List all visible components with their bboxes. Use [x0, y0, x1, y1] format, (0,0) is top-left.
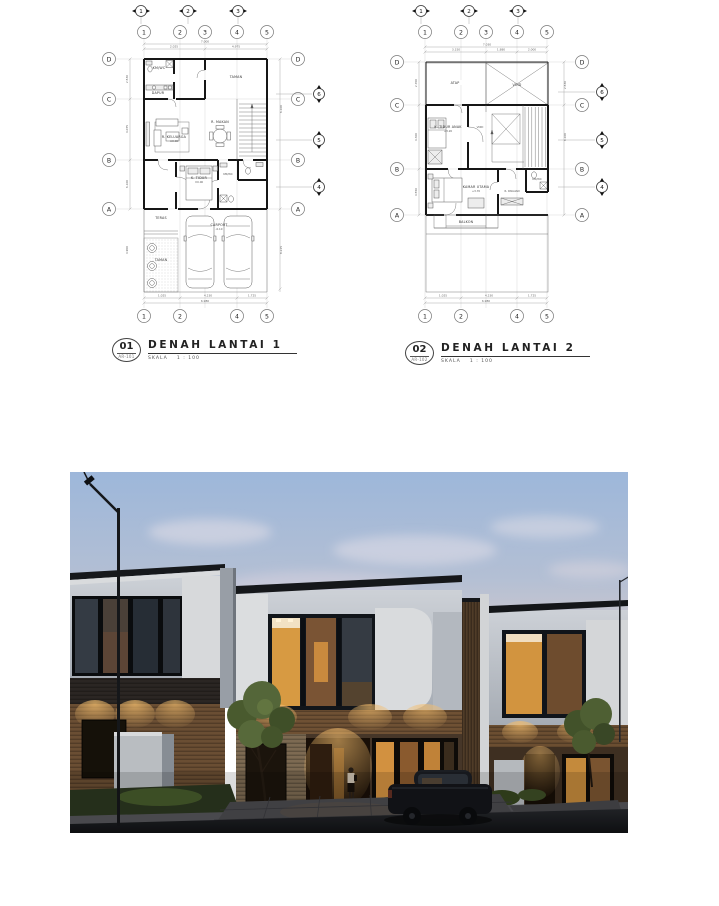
dim-label: 3.150 — [452, 48, 460, 52]
section-label: 3 — [236, 9, 240, 15]
architecture-sheet: 2.025 4.975 7.000 1.025 4.230 1.725 6.98… — [0, 0, 719, 906]
dim-label: 2.700 — [414, 79, 418, 87]
section-label: 4 — [600, 185, 604, 191]
grid-bubble-label: 4 — [235, 29, 239, 36]
floor-plan-1: 2.025 4.975 7.000 1.025 4.230 1.725 6.98… — [98, 2, 338, 340]
section-label: 1 — [419, 9, 423, 15]
plan-title: DENAH LANTAI 1 — [148, 338, 297, 354]
room-label: DAPUR — [152, 91, 165, 95]
dim-label: 8.225 — [279, 246, 283, 254]
room-elevation: -0.10 — [216, 227, 223, 231]
section-label: 2 — [467, 9, 471, 15]
stairs — [239, 104, 266, 156]
white-curved-panel — [375, 608, 432, 710]
section-markers-top: 1 2 3 — [412, 6, 527, 25]
dim-label: 6.100 — [279, 105, 283, 113]
grid-bubble-label: D — [395, 59, 400, 66]
dim-label: 1.025 — [158, 294, 166, 298]
room-label: KM/WC — [532, 177, 542, 181]
dim-label: 6.980 — [201, 299, 209, 303]
plan-title: DENAH LANTAI 2 — [441, 341, 590, 357]
grid-bubble-label: B — [580, 166, 584, 173]
plan-2-title-block: 02 AR-102 DENAH LANTAI 2 SKALA 1 : 100 — [405, 341, 590, 365]
balcony — [426, 215, 548, 292]
grid-bubble-label: C — [296, 96, 300, 103]
section-label: 6 — [317, 92, 321, 98]
section-label: 1 — [139, 9, 143, 15]
dim-label: 7.030 — [483, 43, 491, 47]
dim-label: 2.025 — [170, 45, 178, 49]
grid-bubbles-right: D C B A — [292, 53, 305, 216]
white-panel — [182, 576, 225, 678]
dim-label: 1.025 — [439, 294, 447, 298]
dim-label: 4.230 — [485, 294, 493, 298]
grid-bubble-label: 2 — [178, 313, 182, 320]
dim-label: 2.000 — [528, 48, 536, 52]
room-label: VOID — [512, 83, 521, 87]
floor-plan-2: 3.150 1.880 2.000 7.030 1.025 4.230 1.72… — [388, 2, 628, 340]
grid-bubble-label: 3 — [484, 29, 488, 36]
room-label: TAMAN — [229, 75, 243, 79]
grid-bubble-label: 1 — [142, 29, 146, 36]
plan-number: 02 — [410, 345, 430, 357]
dim-label: 4.075 — [125, 125, 129, 133]
grid-bubble-label: 5 — [265, 29, 269, 36]
bathroom-fixtures — [220, 163, 263, 203]
room-label: VOID — [477, 125, 484, 129]
grid-bubble-label: 1 — [142, 313, 146, 320]
dim-label: 2.530 — [563, 81, 567, 89]
upper-window — [268, 614, 375, 710]
white-fin — [480, 594, 489, 790]
section-label: 3 — [516, 9, 520, 15]
slat-tower — [462, 594, 489, 790]
room-elevation: +3.70 — [472, 189, 481, 193]
dining-furniture — [210, 126, 231, 147]
grid-bubbles-right: D C B A — [576, 56, 589, 222]
room-label: R. PAKAIAN — [505, 189, 520, 193]
grid-bubbles-bottom: 1 2 4 5 — [138, 310, 274, 323]
grid-bubble-label: 2 — [178, 29, 182, 36]
dim-label: 1.725 — [528, 294, 536, 298]
scale-value: 1 : 100 — [177, 356, 200, 361]
room-label: TAMAN — [154, 258, 168, 262]
grid-bubble-label: D — [107, 56, 112, 63]
section-label: 4 — [317, 185, 321, 191]
plan-scale: SKALA 1 : 100 — [148, 356, 297, 361]
floor-plan-2-drawing: 3.150 1.880 2.000 7.030 1.025 4.230 1.72… — [388, 2, 628, 336]
grid-bubble-label: 2 — [459, 313, 463, 320]
dimensions: 3.150 1.880 2.000 7.030 1.025 4.230 1.72… — [414, 43, 567, 305]
grid-bubble-label: B — [296, 157, 300, 164]
room-labels: ATAP VOID K. TIDUR ANAK +3.20 VOID KAMAR… — [434, 81, 542, 224]
grid-bubble-label: D — [296, 56, 301, 63]
grid-bubble-label: C — [107, 96, 111, 103]
grid-bubbles-top: 1 2 3 4 5 — [419, 26, 554, 39]
scale-label: SKALA — [148, 356, 168, 361]
dim-label: 1.880 — [497, 48, 505, 52]
grid-bubbles-top: 1 2 3 4 5 — [138, 26, 274, 39]
room-label: BALKON — [459, 220, 474, 224]
plan-number-badge: 01 AR-101 — [112, 338, 141, 362]
exterior-render — [70, 472, 628, 833]
bottom-vignette — [70, 772, 628, 833]
dim-label: 2.530 — [125, 75, 129, 83]
kitchen-fixtures — [146, 61, 173, 91]
dim-label: 4.550 — [414, 188, 418, 196]
exterior-render-image — [70, 472, 628, 833]
dim-label: 7.000 — [201, 40, 209, 44]
stairs — [491, 107, 546, 167]
dim-label: 4.975 — [232, 45, 240, 49]
grid-bubble-label: 5 — [545, 313, 549, 320]
plan-number-badge: 02 AR-102 — [405, 341, 434, 365]
grid-bubble-label: 4 — [515, 313, 519, 320]
grid-bubbles-bottom: 1 2 4 5 — [419, 310, 554, 323]
room-label: KM/WC — [223, 172, 233, 176]
grid-bubble-label: 5 — [545, 29, 549, 36]
dim-label: 4.230 — [204, 294, 212, 298]
room-label: R. MAKAN — [211, 120, 229, 124]
upper-window — [72, 596, 182, 676]
dim-label: 4.300 — [414, 133, 418, 141]
section-label: 6 — [600, 90, 604, 96]
scale-label: SKALA — [441, 359, 461, 364]
floor-plan-1-drawing: 2.025 4.975 7.000 1.025 4.230 1.725 6.98… — [98, 2, 338, 336]
grid-bubble-label: 5 — [265, 313, 269, 320]
roof-area — [426, 63, 548, 105]
grid-bubble-label: C — [580, 102, 584, 109]
room-elevation: +3.20 — [444, 129, 453, 133]
dim-label: 1.725 — [248, 294, 256, 298]
grid-bubble-label: 2 — [459, 29, 463, 36]
scale-value: 1 : 100 — [470, 359, 493, 364]
dim-label: 6.980 — [482, 299, 490, 303]
left-house — [70, 564, 225, 804]
plan-scale: SKALA 1 : 100 — [441, 359, 590, 364]
grid-bubble-label: C — [395, 102, 399, 109]
section-markers-top: 1 2 3 — [132, 6, 247, 25]
room-label: TERAS — [154, 216, 167, 220]
room-label: ATAP — [451, 81, 460, 85]
plan-1-title-block: 01 AR-101 DENAH LANTAI 1 SKALA 1 : 100 — [112, 338, 297, 362]
dim-label: 6.100 — [125, 180, 129, 188]
grid-bubble-label: 3 — [203, 29, 207, 36]
room-label: KM/WC — [153, 66, 166, 70]
grid-bubble-label: 1 — [423, 29, 427, 36]
grid-bubble-label: 1 — [423, 313, 427, 320]
divider-fin — [220, 568, 236, 708]
section-label: 2 — [186, 9, 190, 15]
grid-lines — [404, 38, 578, 308]
grid-bubble-label: D — [580, 59, 585, 66]
grid-bubble-label: 4 — [235, 313, 239, 320]
grid-bubbles-left: D C B A — [103, 53, 116, 216]
upper-window — [502, 630, 586, 718]
sheet-code: AR-101 — [118, 354, 134, 359]
section-label: 5 — [317, 138, 321, 144]
grid-bubble-label: B — [395, 166, 399, 173]
sheet-code: AR-102 — [411, 357, 427, 362]
grid-bubble-label: 4 — [515, 29, 519, 36]
section-label: 5 — [600, 138, 604, 144]
grid-bubbles-left: D C B A — [391, 56, 404, 222]
dim-label: 4.900 — [125, 246, 129, 254]
room-elevation: ±0.00 — [170, 139, 179, 143]
grid-bubble-label: B — [107, 157, 111, 164]
plan-number: 01 — [117, 342, 137, 354]
room-elevation: ±0.00 — [195, 180, 204, 184]
